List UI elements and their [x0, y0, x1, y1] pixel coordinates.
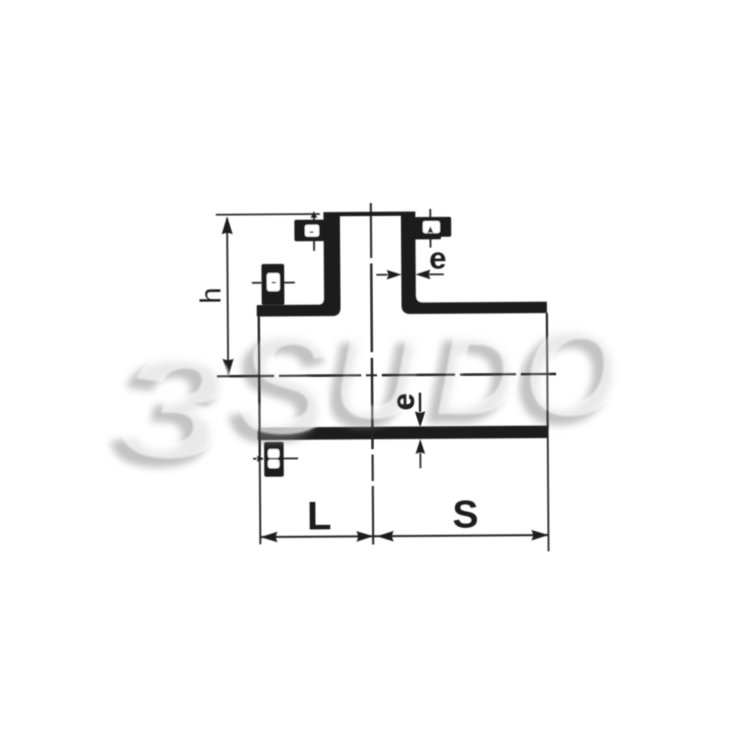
svg-text:e: e [429, 240, 446, 275]
svg-text:S: S [452, 493, 478, 536]
svg-text:L: L [307, 494, 332, 538]
svg-text:D: D [436, 306, 523, 440]
svg-text:O: O [524, 297, 625, 443]
svg-text:3: 3 [120, 321, 232, 489]
svg-text:h: h [195, 287, 227, 303]
svg-text:S: S [238, 300, 337, 465]
svg-text:e: e [386, 393, 421, 410]
